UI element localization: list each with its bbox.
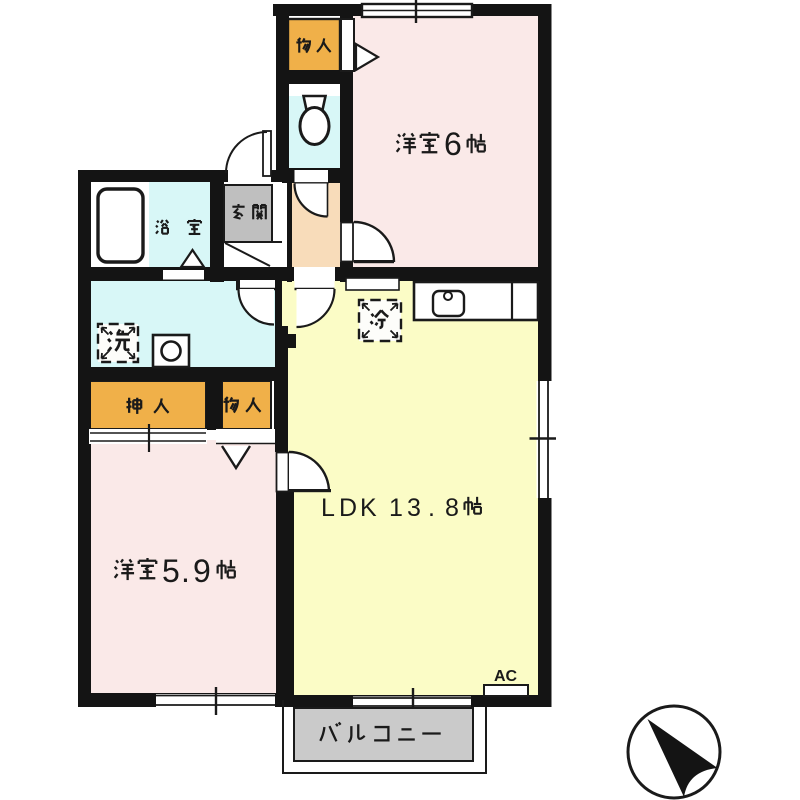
svg-text:L: L: [321, 494, 335, 522]
svg-text:AC: AC: [494, 668, 518, 685]
svg-text:K: K: [360, 494, 377, 522]
svg-text:D: D: [339, 494, 357, 522]
svg-text:6: 6: [444, 126, 462, 162]
svg-text:.: .: [428, 494, 435, 522]
svg-text:.: .: [181, 553, 190, 589]
svg-text:3: 3: [407, 494, 421, 522]
svg-text:8: 8: [445, 494, 459, 522]
svg-text:9: 9: [193, 553, 211, 589]
svg-text:1: 1: [389, 494, 403, 522]
svg-text:5: 5: [162, 553, 180, 589]
